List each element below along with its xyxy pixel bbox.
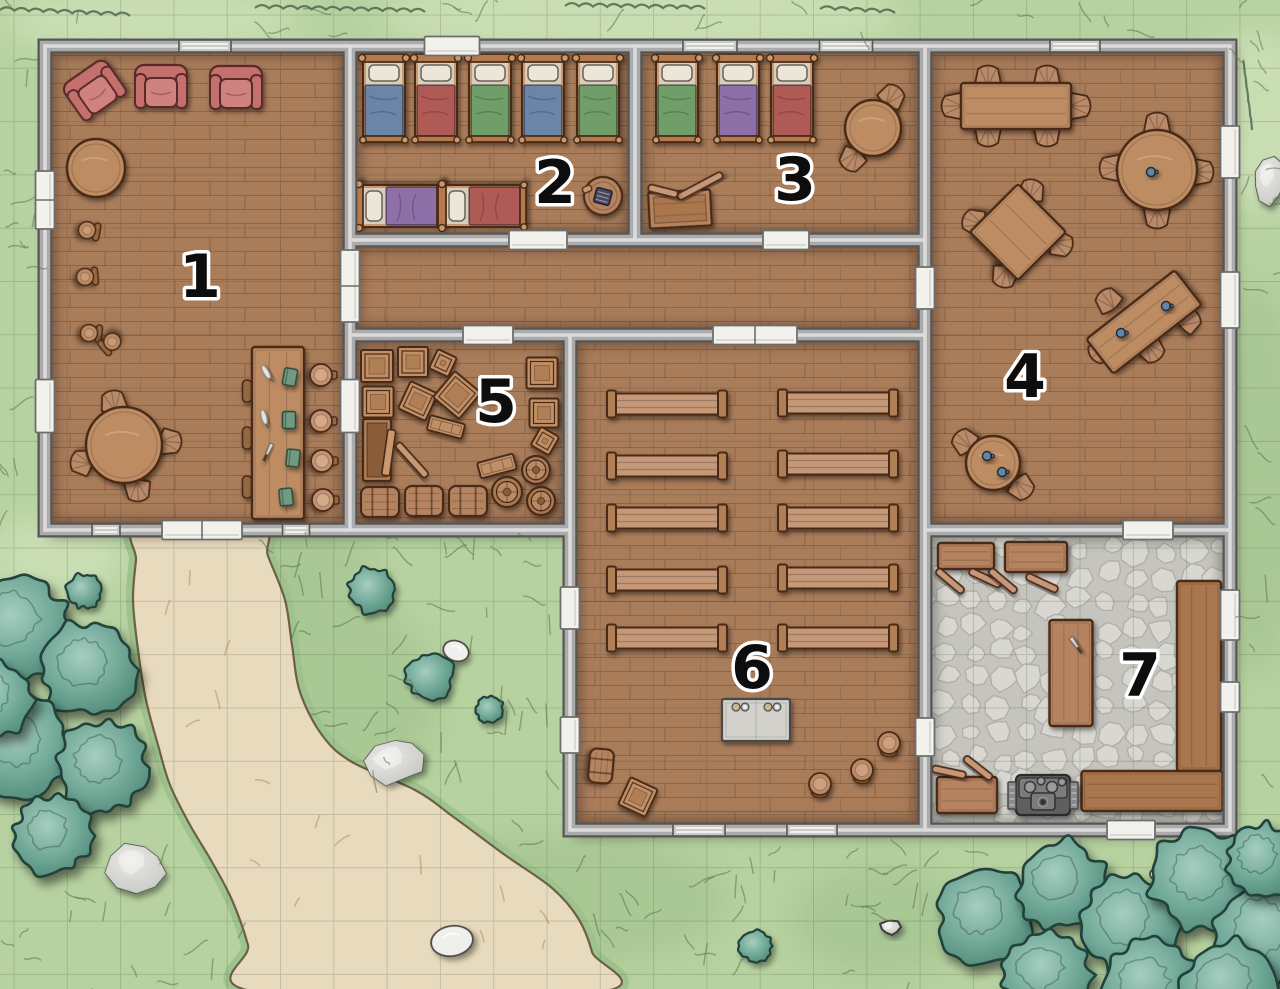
crate_open — [363, 419, 396, 481]
counter — [1082, 771, 1223, 811]
stool — [809, 773, 831, 798]
room-label-3: 3 — [774, 145, 816, 215]
stool — [851, 759, 873, 784]
round_table — [86, 407, 162, 483]
door — [463, 326, 513, 345]
stool — [878, 732, 900, 757]
room-label-7: 7 — [1119, 641, 1161, 711]
door — [1221, 590, 1240, 640]
bench — [607, 625, 727, 652]
bed — [411, 54, 462, 143]
door — [916, 267, 935, 309]
chair_tucked — [243, 476, 252, 498]
door — [36, 380, 55, 433]
book — [282, 368, 298, 387]
door — [341, 380, 360, 433]
armchair — [210, 66, 262, 109]
table_small — [937, 777, 997, 813]
bed — [355, 181, 444, 232]
stove — [1008, 775, 1078, 815]
room-label-1: 1 — [179, 242, 221, 312]
table_small — [938, 543, 994, 569]
bed — [359, 54, 410, 143]
bench — [778, 390, 898, 417]
barrel_side — [361, 487, 399, 517]
window — [683, 40, 737, 52]
map-canvas: 1234567 — [0, 0, 1280, 989]
chair_sm — [76, 267, 99, 287]
barrel_top — [492, 477, 522, 507]
book — [283, 412, 296, 429]
barrel_top — [522, 456, 550, 484]
bench — [607, 391, 727, 418]
door — [341, 250, 360, 322]
bench — [778, 505, 898, 532]
bench — [607, 505, 727, 532]
door — [1221, 272, 1240, 328]
dining_table — [961, 83, 1071, 129]
chair_tucked — [243, 380, 252, 402]
door — [763, 231, 809, 250]
table_small — [1050, 620, 1093, 726]
bench — [607, 453, 727, 480]
room-label-5: 5 — [475, 367, 517, 437]
crate — [527, 358, 558, 389]
altar — [722, 699, 790, 741]
chair — [942, 93, 964, 119]
chair_tucked — [243, 427, 252, 449]
door — [1221, 682, 1240, 712]
armchair — [135, 65, 187, 108]
door — [425, 37, 480, 56]
barrel_side — [588, 748, 615, 784]
door — [1107, 821, 1155, 840]
bed — [652, 54, 703, 143]
door — [162, 521, 242, 540]
book — [286, 449, 301, 467]
bed — [518, 54, 569, 143]
barrel_top — [527, 487, 555, 515]
round_table — [845, 100, 901, 156]
floor-room-corridor — [350, 240, 925, 335]
bed — [573, 54, 624, 143]
bench — [778, 625, 898, 652]
crate — [363, 387, 394, 418]
window — [1050, 40, 1100, 52]
bench — [778, 451, 898, 478]
crate — [530, 399, 559, 428]
window — [787, 824, 837, 836]
bench — [778, 565, 898, 592]
counter — [1177, 581, 1221, 771]
crate — [398, 347, 428, 377]
window — [179, 40, 231, 52]
bench — [607, 567, 727, 594]
bed — [465, 54, 516, 143]
bush — [475, 696, 503, 723]
barrel_side — [449, 486, 487, 516]
door — [1221, 126, 1240, 178]
door — [509, 231, 567, 250]
room-label-4: 4 — [1004, 342, 1046, 412]
crate — [361, 350, 393, 382]
window — [92, 524, 120, 536]
bed — [713, 54, 764, 143]
round_table — [67, 139, 125, 197]
door — [916, 718, 935, 756]
door — [561, 587, 580, 629]
battle-map-screenshot: 1234567 — [0, 0, 1280, 989]
chair — [1069, 93, 1091, 119]
book — [279, 488, 294, 506]
door — [561, 717, 580, 753]
room-label-6: 6 — [731, 633, 773, 703]
window — [673, 824, 725, 836]
bed — [438, 181, 527, 232]
barrel_side — [405, 486, 443, 516]
round_table — [966, 436, 1020, 490]
door — [36, 171, 55, 229]
door — [713, 326, 797, 345]
table_small — [1005, 542, 1067, 572]
bed — [767, 54, 818, 143]
door — [1123, 521, 1173, 540]
room-label-2: 2 — [534, 148, 576, 218]
